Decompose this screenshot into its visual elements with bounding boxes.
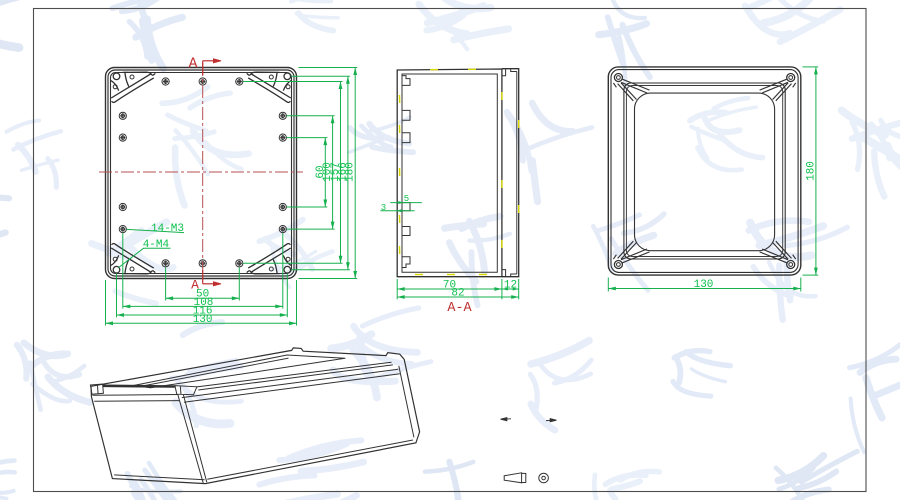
svg-text:14-M3: 14-M3 (151, 223, 184, 235)
svg-text:4-M4: 4-M4 (143, 239, 170, 251)
svg-text:12: 12 (504, 279, 517, 291)
svg-text:5: 5 (404, 194, 409, 204)
svg-text:130: 130 (193, 314, 213, 326)
svg-text:180: 180 (806, 161, 818, 181)
svg-text:82: 82 (451, 287, 464, 299)
svg-text:130: 130 (694, 279, 714, 291)
svg-text:A: A (188, 56, 197, 73)
svg-text:A-A: A-A (447, 301, 472, 316)
svg-text:180: 180 (345, 162, 357, 182)
svg-text:3: 3 (381, 203, 386, 213)
